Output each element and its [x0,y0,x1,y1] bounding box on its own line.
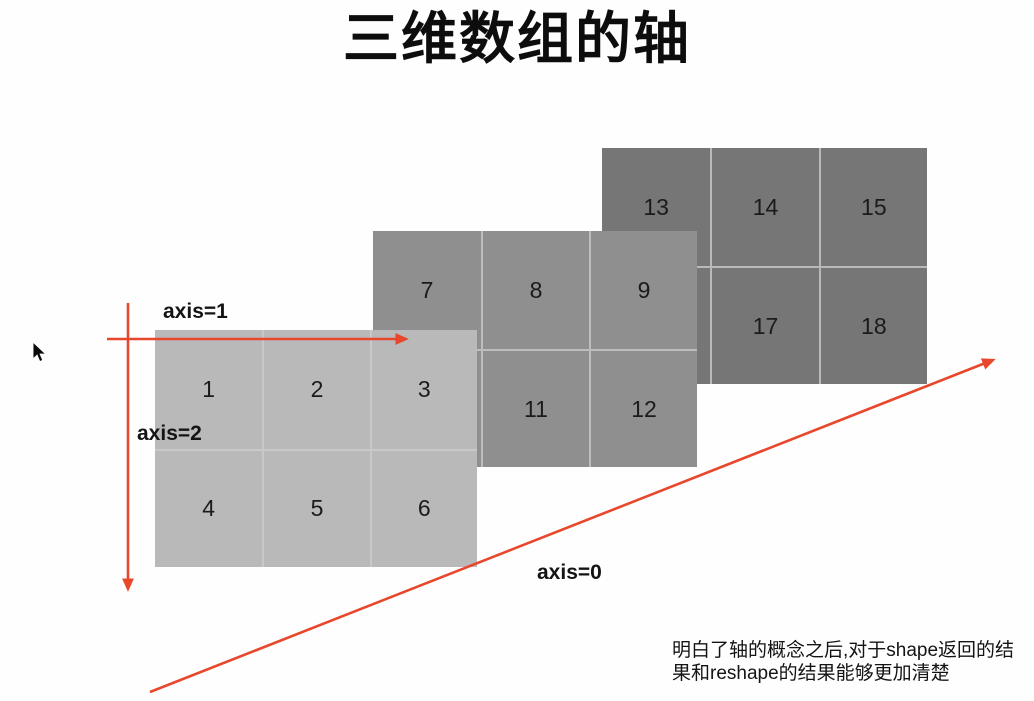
cell-value: 1 [202,376,215,403]
matrix-cell: 18 [819,266,927,384]
cell-value: 7 [421,277,434,304]
cell-value: 11 [524,396,548,423]
cell-value: 6 [418,495,431,522]
cell-value: 15 [861,194,887,221]
matrix-cell: 4 [155,449,262,568]
matrix-cell: 11 [481,349,589,467]
cell-value: 8 [530,277,543,304]
matrix-cell: 17 [710,266,818,384]
cell-value: 14 [753,194,779,221]
footnote-line2: 果和reshape的结果能够更加清楚 [672,662,1014,685]
cell-value: 12 [631,396,657,423]
cell-value: 2 [311,376,324,403]
matrix-cell: 2 [262,330,369,449]
cell-value: 18 [861,313,887,340]
matrix-cell: 15 [819,148,927,266]
matrix-cell: 9 [589,231,697,349]
cell-value: 4 [202,495,215,522]
matrix-cell: 5 [262,449,369,568]
matrix-cell: 12 [589,349,697,467]
axis0-label: axis=0 [537,562,602,583]
cell-value: 5 [311,495,324,522]
mouse-cursor-icon [30,341,48,365]
matrix-cell: 6 [370,449,477,568]
matrix-cell: 8 [481,231,589,349]
cell-value: 3 [418,376,431,403]
cell-value: 17 [753,313,779,340]
footnote-line1: 明白了轴的概念之后,对于shape返回的结 [672,639,1014,662]
footnote: 明白了轴的概念之后,对于shape返回的结 果和reshape的结果能够更加清楚 [672,639,1014,685]
axis2-label: axis=2 [137,423,202,444]
matrix-cell: 14 [710,148,818,266]
front-plane: 1 2 3 4 5 6 [155,330,477,567]
axis1-label: axis=1 [163,301,228,322]
matrix-cell: 3 [370,330,477,449]
page-title: 三维数组的轴 [0,10,1034,69]
cell-value: 13 [643,194,669,221]
cell-value: 9 [638,277,651,304]
slide: 三维数组的轴 13 14 15 17 18 7 8 9 11 12 1 2 3 … [0,0,1034,701]
